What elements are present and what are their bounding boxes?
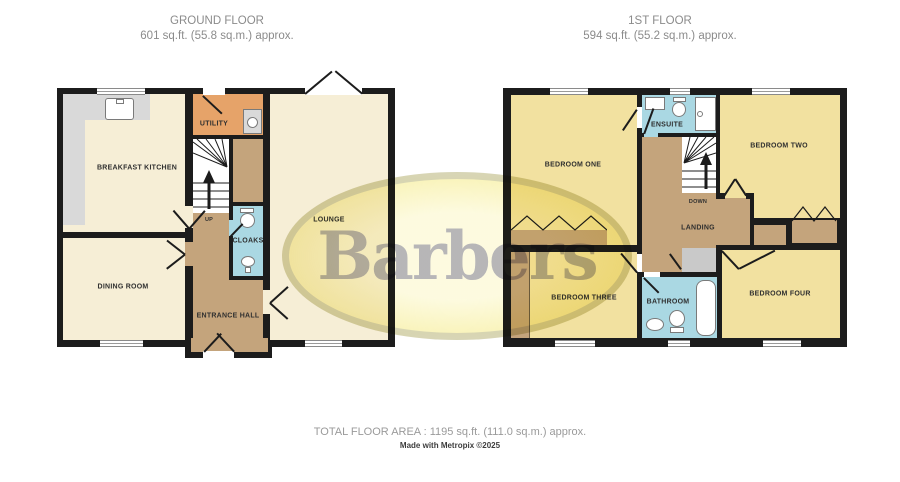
window [100,340,143,347]
airing-cupboard [682,248,716,272]
label-down: DOWN [689,199,707,205]
label-ensuite: ENSUITE [651,122,683,129]
footer: TOTAL FLOOR AREA : 1195 sq.ft. (111.0 sq… [0,426,900,450]
label-bathroom: BATHROOM [647,299,690,306]
window [305,340,342,347]
ground-floor-name: GROUND FLOOR [62,14,372,29]
bath-icon [696,280,716,336]
front-door-opening [203,351,234,358]
label-bedroom-one: BEDROOM ONE [545,162,601,169]
ensuite-basin-icon [645,97,665,110]
first-floor-name: 1ST FLOOR [510,14,810,29]
ground-floor-area: 601 sq.ft. (55.8 sq.m.) approx. [62,29,372,44]
label-cloaks: CLOAKS [232,238,263,245]
door-opening [637,254,642,272]
metropix-credit: Made with Metropix ©2025 [0,441,900,450]
bedroom-two-wardrobe [792,220,837,243]
door-opening [203,88,225,95]
shower-handle-icon [697,111,703,117]
label-entrance-hall: ENTRANCE HALL [197,313,260,320]
toilet-icon [669,310,685,327]
window [550,88,588,95]
kitchen-counter-left [63,94,85,225]
room-entrance-hall-b [193,280,263,340]
floorplan-canvas: GROUND FLOOR 601 sq.ft. (55.8 sq.m.) app… [0,0,900,482]
window [670,88,690,95]
door-opening [644,272,660,277]
window [668,340,690,347]
agency-watermark-text: Barbers [317,217,596,295]
toilet-cistern-icon [670,327,684,333]
toilet-icon [672,102,686,117]
stairs-down-icon [682,137,716,193]
wall [750,193,754,245]
label-bedroom-four: BEDROOM FOUR [749,291,810,298]
label-up: UP [205,217,213,223]
label-breakfast-kitchen: BREAKFAST KITCHEN [97,165,177,172]
french-door-opening [305,88,362,95]
wardrobe-doors-icon [792,204,837,222]
ground-floor-title: GROUND FLOOR 601 sq.ft. (55.8 sq.m.) app… [62,14,372,44]
store-cupboard [233,139,263,202]
door-opening [637,107,642,128]
door-opening [185,242,193,266]
total-floor-area: TOTAL FLOOR AREA : 1195 sq.ft. (111.0 sq… [0,426,900,438]
label-landing: LANDING [681,225,715,232]
window [97,88,145,95]
label-bedroom-two: BEDROOM TWO [750,143,808,150]
basin-pedestal-icon [245,267,251,273]
toilet-icon [240,213,255,228]
label-dining-room: DINING ROOM [98,284,149,291]
window [555,340,595,347]
first-floor-title: 1ST FLOOR 594 sq.ft. (55.2 sq.m.) approx… [510,14,810,44]
window [763,340,801,347]
basin-icon [646,318,664,331]
agency-watermark: Barbers [282,172,632,340]
stairs-up-icon [193,139,229,213]
room-landing-left [642,137,682,272]
first-floor-area: 594 sq.ft. (55.2 sq.m.) approx. [510,29,810,44]
kitchen-faucet-icon [116,99,124,104]
door-opening [644,133,658,137]
window [752,88,790,95]
basin-icon [241,256,255,267]
washer-drum-icon [247,117,258,128]
label-utility: UTILITY [200,121,228,128]
